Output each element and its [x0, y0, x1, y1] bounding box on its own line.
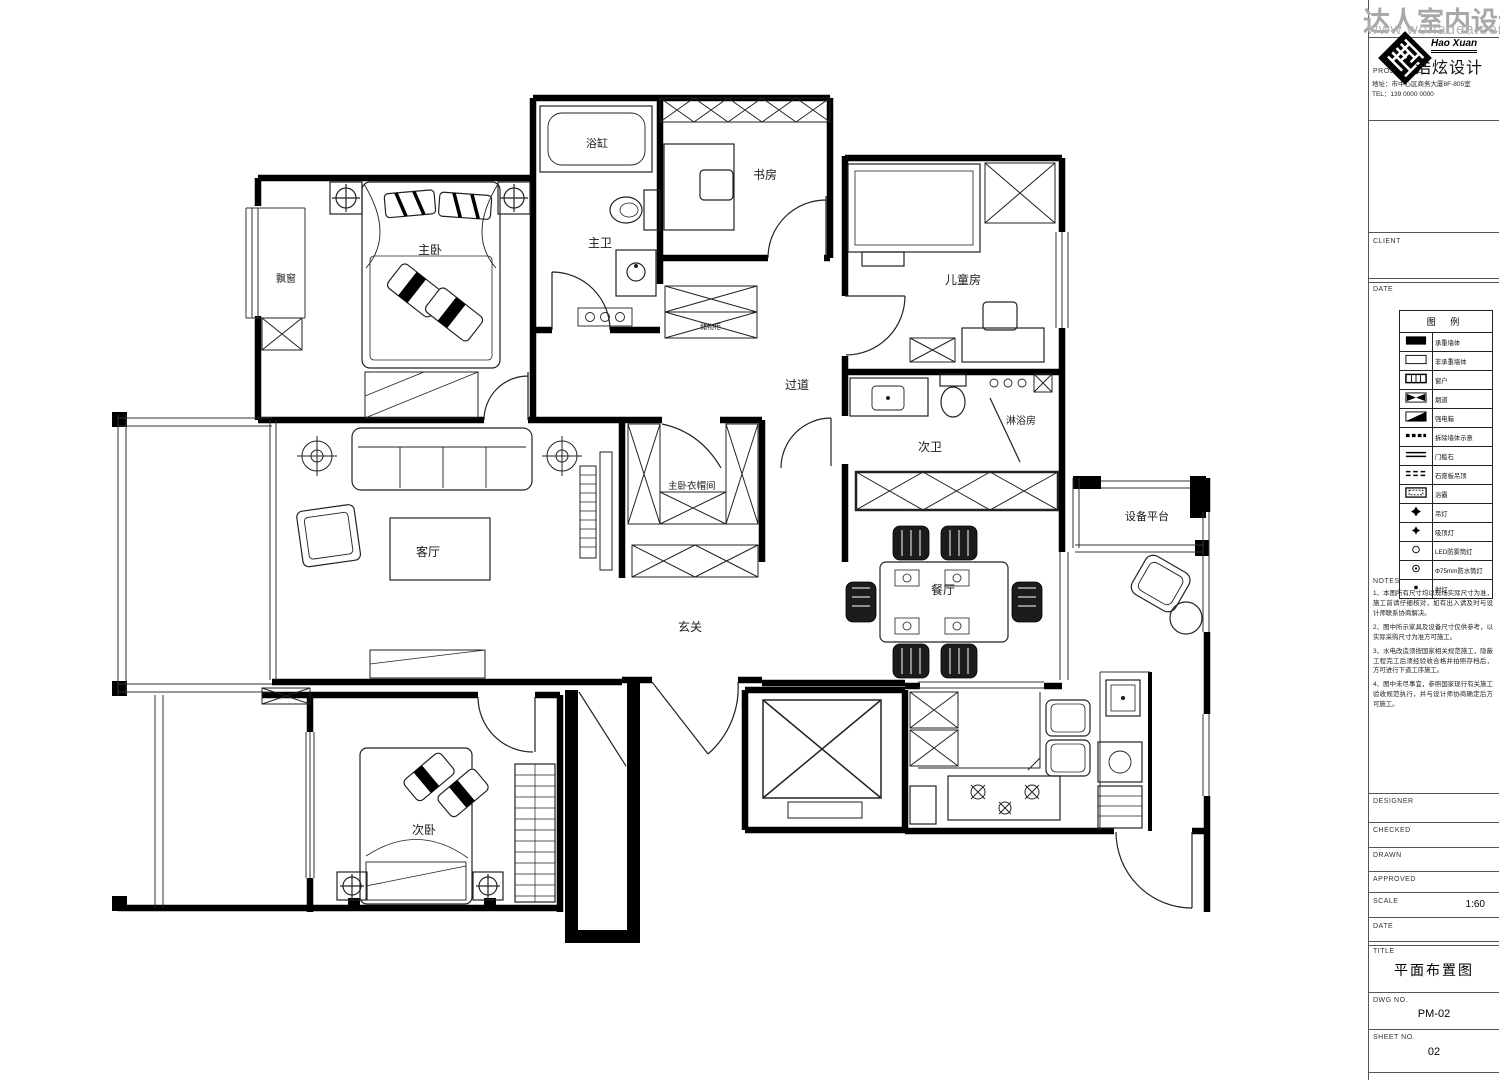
label-living-room: 客厅 — [416, 544, 440, 559]
drawn-label: DRAWN — [1373, 852, 1402, 859]
label-master-bath: 主卫 — [588, 236, 612, 250]
label-study: 书房 — [753, 167, 777, 182]
floorplan-sheet: 飘窗 主卧 浴缸 主卫 书房 儿童房 过道 次卫 淋浴房 主卧衣帽间 玄关 客厅… — [0, 0, 1500, 1080]
date2-label: DATE — [1373, 923, 1393, 930]
title-label: TITLE — [1373, 948, 1395, 955]
scale-label: SCALE — [1373, 898, 1398, 905]
label-hallway: 过道 — [785, 378, 809, 392]
demolish-wall-icon — [1404, 430, 1428, 441]
legend-row: 拆除墙体示意 — [1400, 428, 1493, 447]
note-item: 1、本图所有尺寸均以现场实际尺寸为准，施工前请仔细核对，如有出入请及时与设计师联… — [1373, 589, 1493, 619]
client-label: CLIENT — [1373, 238, 1401, 245]
legend-row: 窗户 — [1400, 371, 1493, 390]
sheet-no-label: SHEET NO. — [1373, 1034, 1415, 1041]
scale-value: 1:60 — [1466, 899, 1485, 910]
hollow-rect-icon — [1404, 354, 1428, 365]
legend-row: 承重墙体 — [1400, 333, 1493, 352]
legend-row: 吊灯 — [1400, 504, 1493, 523]
threshold-icon — [1404, 449, 1428, 460]
legend-row: 非承重墙体 — [1400, 352, 1493, 371]
notes-title: NOTES — [1373, 578, 1493, 585]
title-block: 达人室内设计网 www.wonadea.com PROJECT NO. Hao … — [1368, 0, 1499, 1080]
dining-chairs-group — [846, 526, 1042, 678]
bath-heater-icon — [1404, 487, 1428, 498]
electric-box-icon — [1404, 411, 1428, 422]
legend-row: 石膏板吊顶 — [1400, 466, 1493, 485]
legend-table: 图 例 承重墙体 非承重墙体 窗户 烟道 强电箱 拆除墙体示意 门槛石 石膏板吊… — [1399, 310, 1493, 599]
gypsum-ceiling-icon — [1404, 468, 1428, 479]
furniture-group — [296, 106, 1202, 904]
legend-row: 烟道 — [1400, 390, 1493, 409]
legend-row: Φ75mm防水筒灯 — [1400, 561, 1493, 580]
dwg-no-label: DWG NO. — [1373, 997, 1408, 1004]
filled-rect-icon — [1404, 335, 1428, 346]
flue-icon — [1404, 392, 1428, 403]
brand-name-cn: 浩炫设计 — [1415, 54, 1483, 78]
pendant-lamp-icon — [1404, 506, 1428, 517]
label-entry: 玄关 — [678, 619, 702, 634]
label-dining-room: 餐厅 — [931, 582, 955, 597]
ceiling-lamp-icon — [1404, 525, 1428, 536]
floor-plan-drawing: 飘窗 主卧 浴缸 主卫 书房 儿童房 过道 次卫 淋浴房 主卧衣帽间 玄关 客厅… — [0, 0, 1500, 1080]
legend-row: 强电箱 — [1400, 409, 1493, 428]
label-bathtub: 浴缸 — [586, 136, 608, 150]
label-cabinet-note: 储物柜 — [700, 322, 721, 331]
led-downlight-icon — [1404, 544, 1428, 555]
note-item: 4、图中未尽事宜，参照国家现行有关施工验收规范执行，并与设计师协商确定后方可施工… — [1373, 680, 1493, 710]
brand-name-en: Hao Xuan — [1431, 38, 1477, 53]
designer-label: DESIGNER — [1373, 798, 1414, 805]
dwg-no-value: PM-02 — [1369, 1008, 1499, 1020]
note-item: 3、水电改造须按国家相关规范施工，隐蔽工程完工后须经验收合格并拍照存档后，方可进… — [1373, 647, 1493, 677]
brand-address: 地址：市中心区商务大厦8F-805室 — [1372, 78, 1471, 88]
waterproof-downlight-icon — [1404, 563, 1428, 574]
label-shower-room: 淋浴房 — [1006, 414, 1036, 427]
label-master-bedroom: 主卧 — [418, 243, 442, 257]
brand-tel: TEL：139 0000 0000 — [1372, 88, 1434, 98]
label-kids-room: 儿童房 — [945, 272, 981, 287]
checked-label: CHECKED — [1373, 827, 1411, 834]
label-bay-window: 飘窗 — [276, 272, 296, 285]
legend-row: 浴霸 — [1400, 485, 1493, 504]
sheet-no-value: 02 — [1369, 1046, 1499, 1058]
legend-title: 图 例 — [1400, 311, 1493, 333]
drawing-title: 平面布置图 — [1369, 960, 1499, 980]
notes-section: NOTES 1、本图所有尺寸均以现场实际尺寸为准，施工前请仔细核对，如有出入请及… — [1373, 578, 1493, 714]
label-second-bedroom: 次卧 — [412, 823, 436, 837]
room-labels-group: 飘窗 主卧 浴缸 主卫 书房 儿童房 过道 次卫 淋浴房 主卧衣帽间 玄关 客厅… — [276, 136, 1169, 837]
date-label: DATE — [1373, 286, 1393, 293]
legend-row: 吸顶灯 — [1400, 523, 1493, 542]
windows-group — [118, 208, 1209, 908]
label-equipment-platform: 设备平台 — [1125, 509, 1169, 523]
label-closet: 主卧衣帽间 — [668, 480, 716, 492]
window-icon — [1404, 373, 1428, 384]
legend-row: LED防雾筒灯 — [1400, 542, 1493, 561]
legend-row: 门槛石 — [1400, 447, 1493, 466]
label-second-bath: 次卫 — [918, 440, 942, 454]
approved-label: APPROVED — [1373, 876, 1416, 883]
note-item: 2、图中所示家具及设备尺寸仅供参考，以实际采购尺寸为准方可施工。 — [1373, 623, 1493, 643]
